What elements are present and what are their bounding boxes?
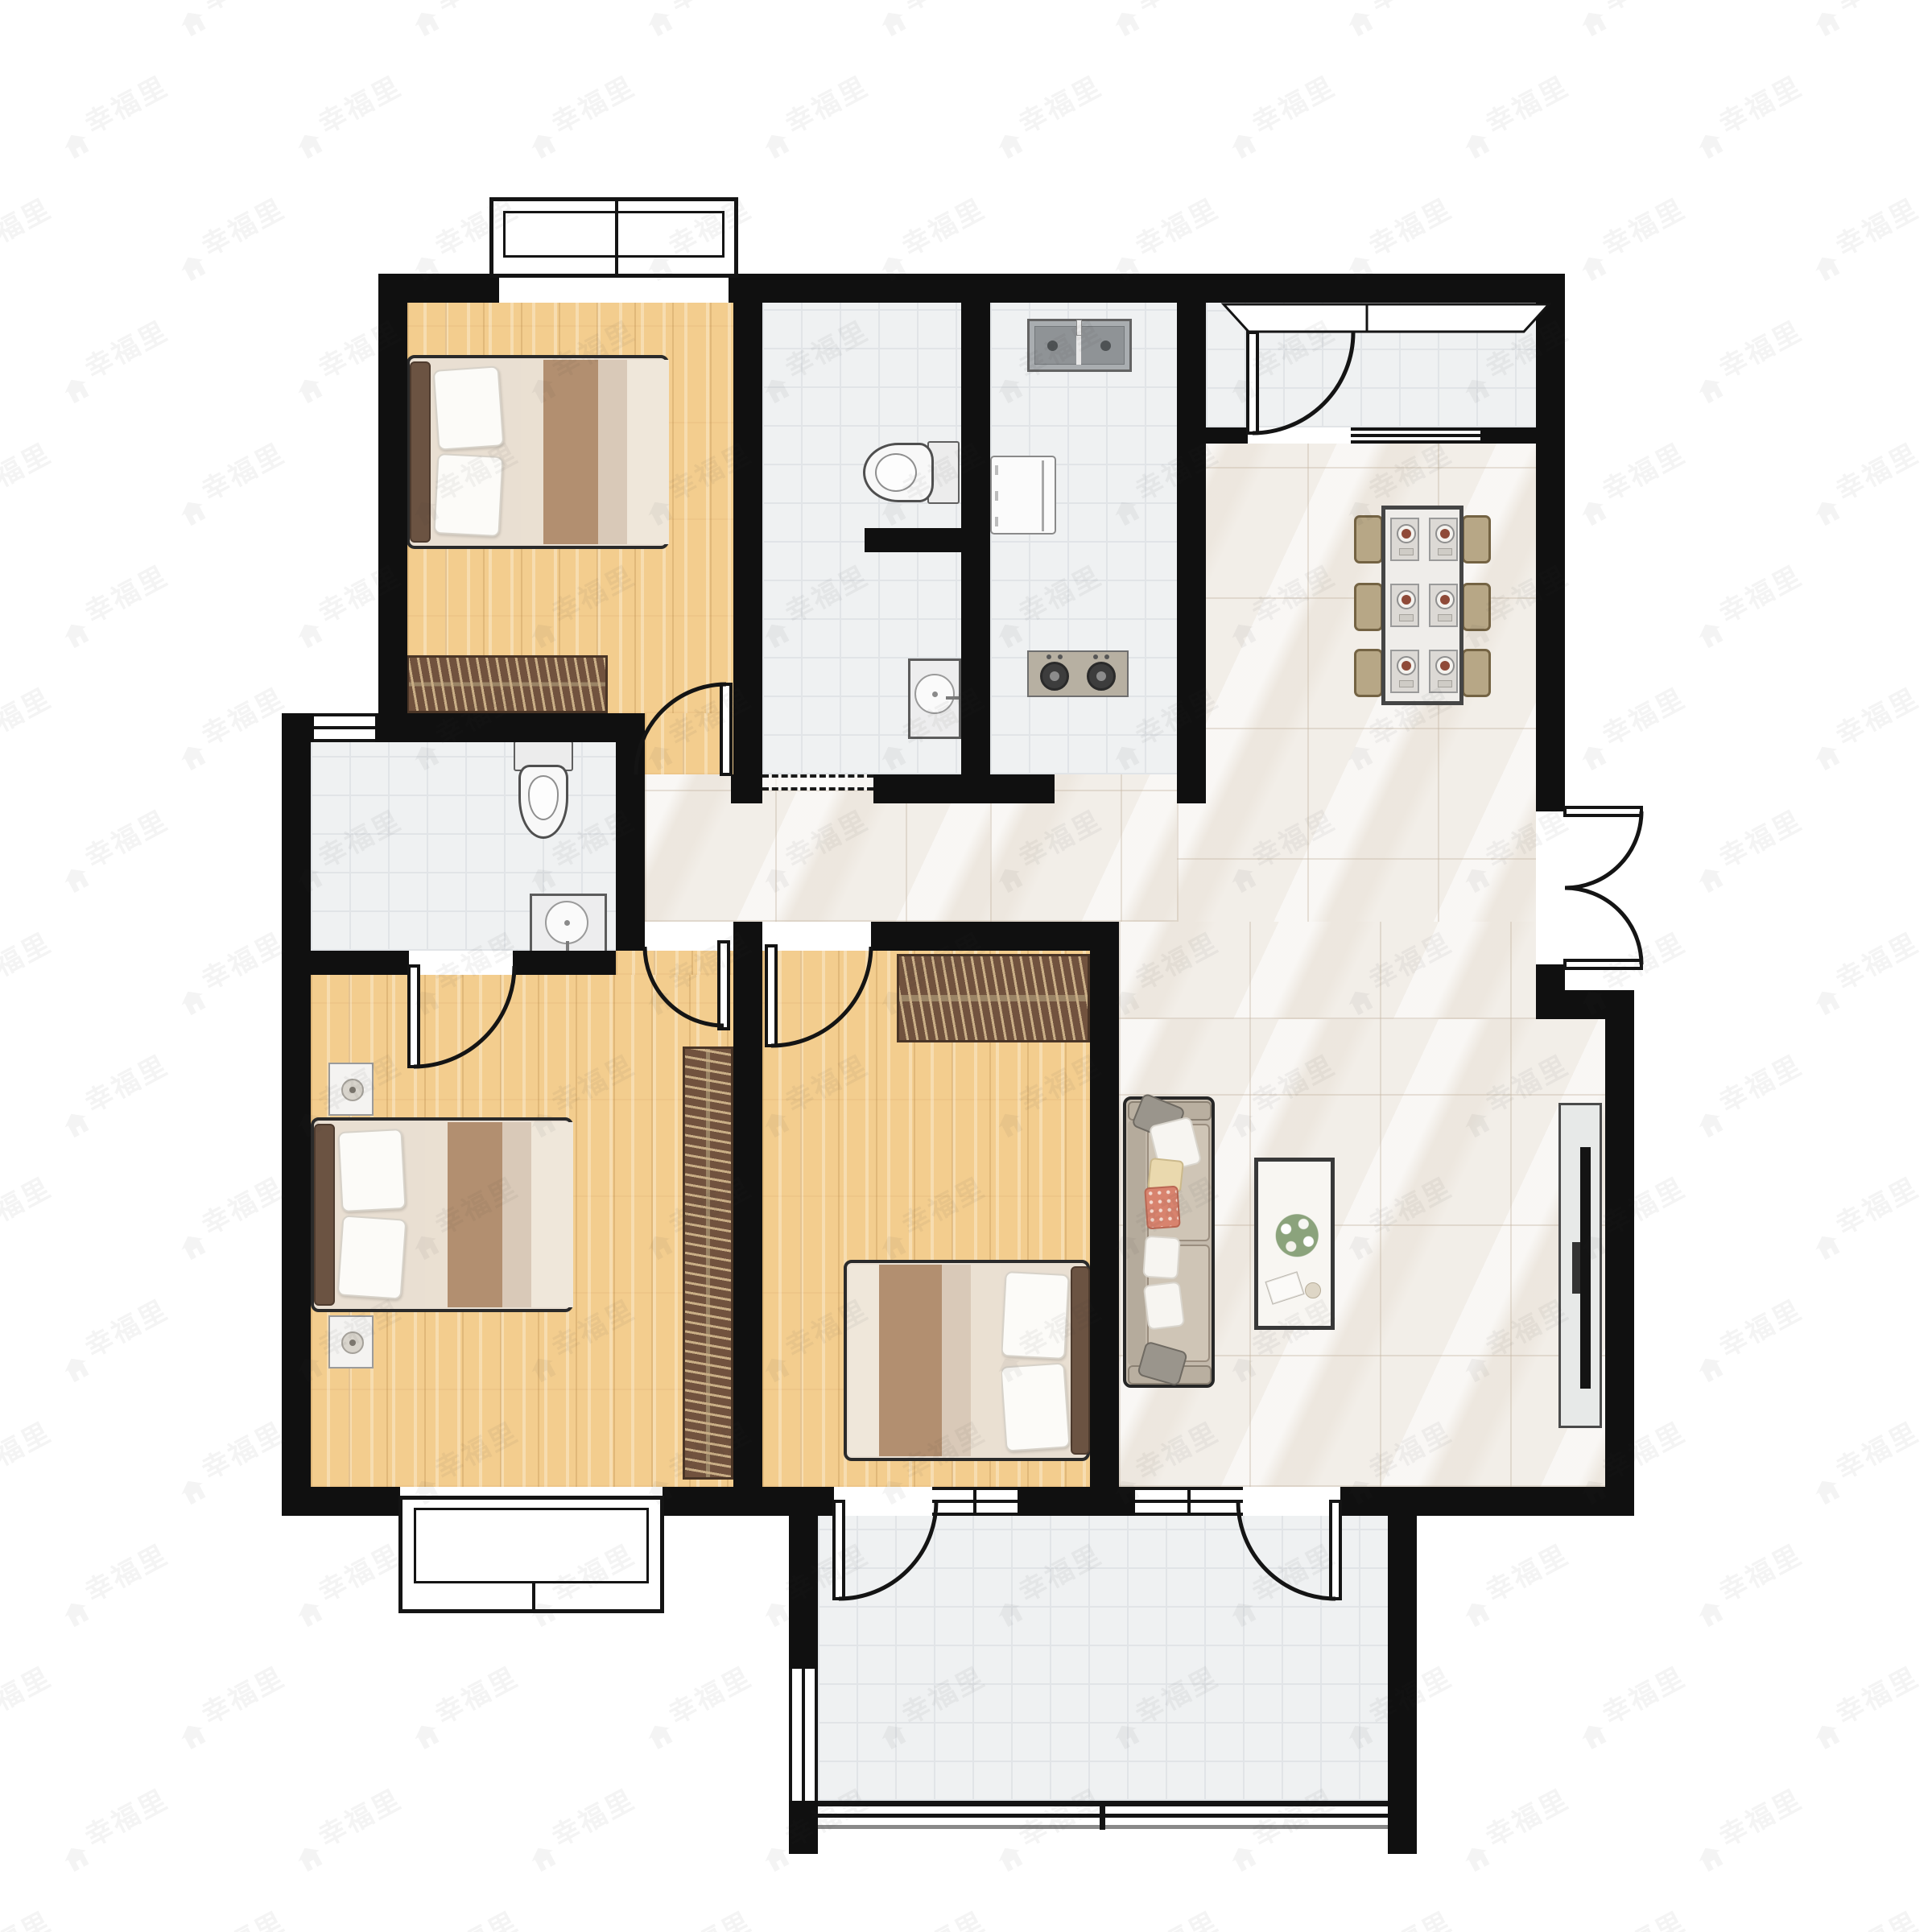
door-arc-balcony-1 xyxy=(839,1501,936,1599)
door-leaf-balcony-1 xyxy=(834,1501,844,1599)
door-arc-double-bottom xyxy=(1565,888,1641,964)
door-leaf-double-top xyxy=(1565,807,1641,815)
door-leaf-balcony-2 xyxy=(1331,1501,1340,1599)
door-arc-balcony-2 xyxy=(1238,1501,1335,1599)
door-leaf-double-bottom xyxy=(1565,960,1641,968)
door-arc-ensuite xyxy=(414,966,514,1067)
door-arc-double-top xyxy=(1565,811,1641,888)
door-leaf-bedroom-top xyxy=(721,684,731,774)
door-arc-bedroom-left xyxy=(645,947,724,1026)
door-arc-entry xyxy=(1253,332,1353,433)
door-arc-bedroom-mid xyxy=(771,947,871,1046)
entry-niche xyxy=(1224,304,1549,332)
door-swing-overlay xyxy=(0,0,1932,1932)
door-leaf-entry xyxy=(1248,332,1257,433)
door-leaf-bedroom-left xyxy=(719,942,729,1029)
door-leaf-bedroom-mid xyxy=(766,946,776,1046)
door-leaf-ensuite xyxy=(409,966,419,1067)
floor-plan-canvas: 幸福里幸福里幸福里幸福里幸福里幸福里幸福里幸福里幸福里幸福里幸福里幸福里幸福里幸… xyxy=(0,0,1932,1932)
door-arc-bedroom-top xyxy=(636,684,726,774)
